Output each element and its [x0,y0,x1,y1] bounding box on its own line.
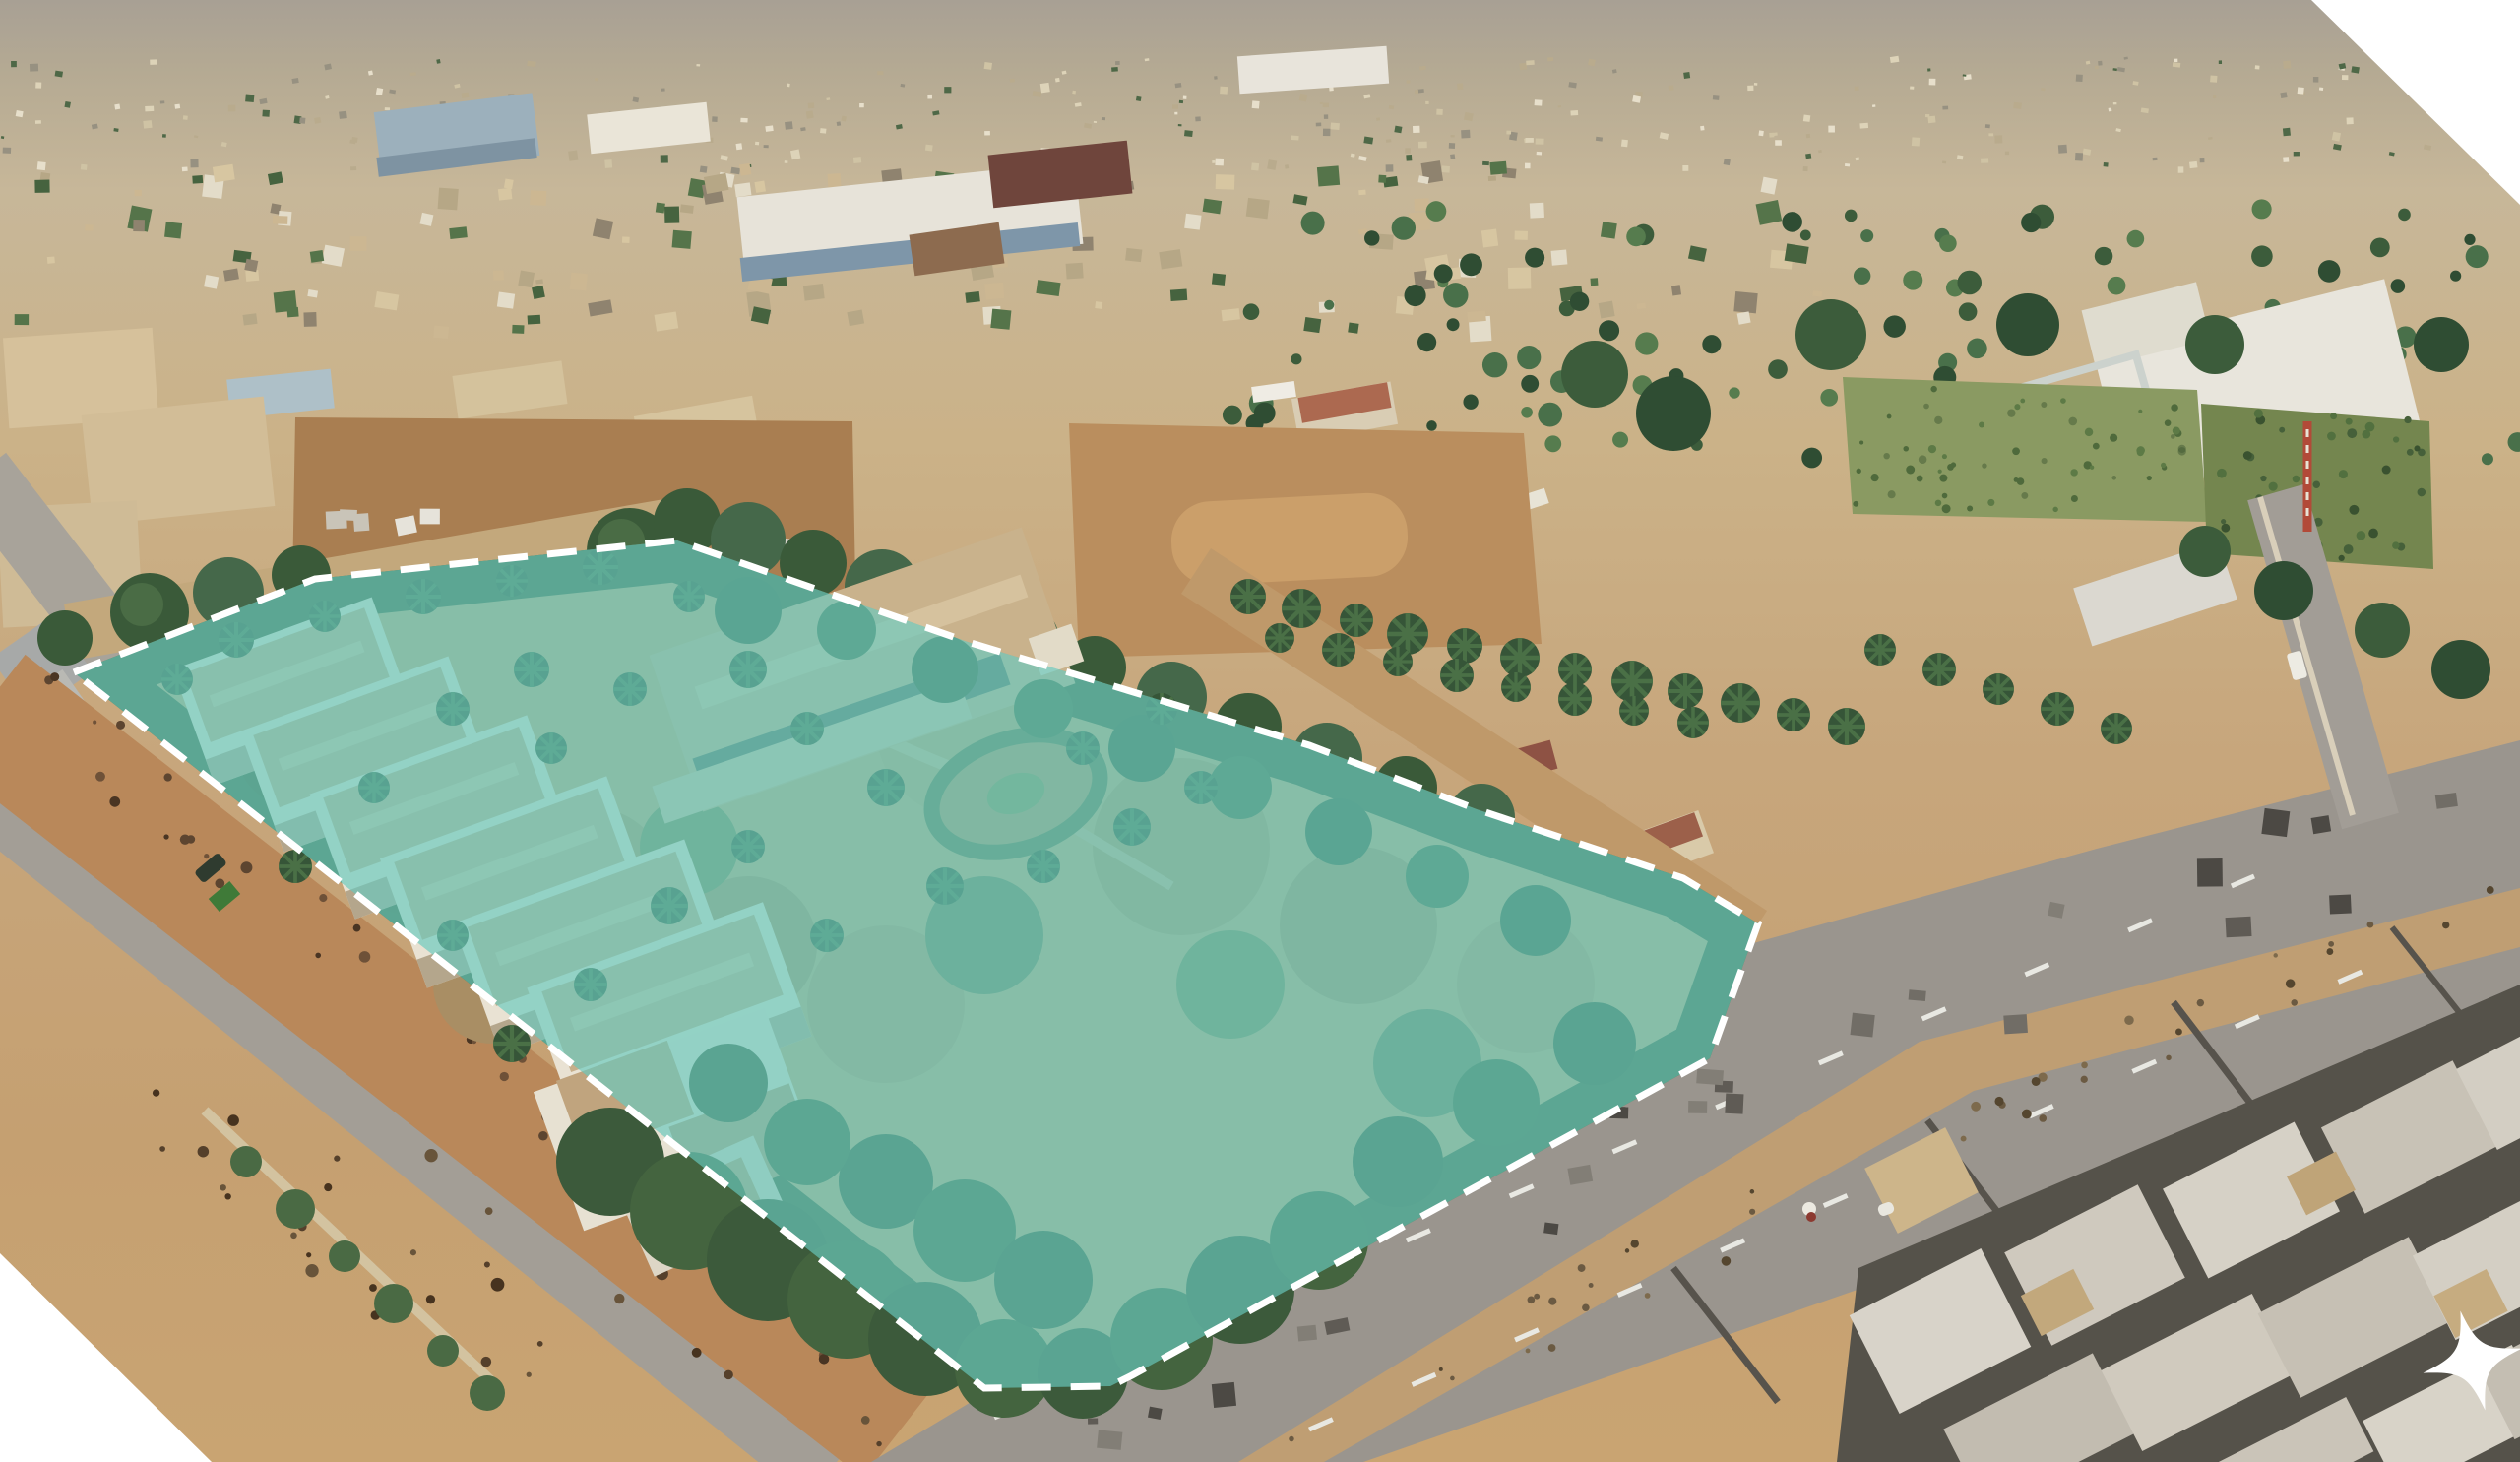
far-city-speckle-block [1406,155,1412,161]
far-city-speckle-block [2219,60,2222,64]
foreground-debris-dot [481,1357,492,1367]
field-rows-dot [1987,499,1994,506]
far-city-speckle-block [3,148,12,154]
median-debris-dot [1582,1303,1590,1311]
mid-city-blocks-block [1170,289,1187,301]
far-city-speckle-block [984,131,990,135]
outside-trees-blob [276,1189,315,1229]
palm-fronds [1983,673,2014,705]
asphalt-patches-block [1696,1068,1724,1085]
mid-city-blocks-block [1222,308,1240,321]
far-city-speckle-block [143,120,152,128]
mid-city-blocks-block [133,220,145,231]
right-orchard-trees-dot [1426,201,1447,222]
right-orchard-trees-dot [2391,279,2406,293]
right-orchard-trees-dot [1820,389,1838,407]
median-debris-dot [1548,1298,1556,1305]
median-debris-dot [2175,1029,2182,1036]
right-orchard-trees-dot [1883,315,1905,337]
far-city-speckle-block [1413,126,1420,133]
right-orchard-trees-dot [1702,335,1721,353]
far-city-speckle-block [30,64,38,72]
field-rows-dot [2007,409,2015,416]
far-city-speckle-block [162,134,166,138]
mid-city-blocks-block [1733,291,1757,313]
far-city-speckle-block [527,61,535,67]
far-city-speckle-block [1596,137,1603,142]
outside-trees-blob [2185,315,2244,374]
far-city-speckle-block [1910,86,1914,89]
mid-city-blocks-block [1489,161,1507,175]
median-debris-dot [2166,1055,2172,1061]
far-city-speckle-block [925,145,933,152]
right-orchard-trees-dot [2466,245,2488,268]
median-debris-dot [2124,1015,2134,1025]
mid-city-blocks-block [1756,200,1783,225]
far-city-speckle-block [1415,90,1418,94]
field-rows-dot [2173,427,2180,435]
right-orchard-trees-dot [1957,271,1982,295]
far-city-speckle-block [2280,92,2287,98]
foreground-debris-dot [159,1146,165,1152]
far-city-speckle-block [1184,130,1193,137]
field-rows-dot [1979,421,1984,427]
palm-fronds [1668,673,1703,709]
field-rows-dot [1883,453,1889,459]
far-city-speckle-block [2109,107,2112,111]
median-debris-dot [2328,941,2334,947]
far-city-speckle-block [765,125,773,132]
far-city-speckle-block [859,103,864,107]
field-rows-dot [2042,458,2047,464]
far-city-speckle-block [1747,86,1753,91]
far-city-speckle-block [1214,76,1218,80]
far-city-speckle-block [1394,126,1402,134]
far-city-speckle-block [1040,83,1050,94]
palm-fronds [1282,589,1321,628]
far-city-speckle-block [1010,79,1015,83]
mid-city-blocks-block [532,286,545,299]
mid-city-blocks-block [739,163,751,176]
garden-rows-dot [2293,476,2299,482]
field-rows-dot [2014,404,2020,410]
far-city-speckle-block [696,64,700,67]
far-city-speckle-block [1386,164,1394,172]
field-rows-dot [1947,464,1954,471]
far-city-speckle-block [1537,152,1543,156]
mid-city-blocks-block [1515,231,1528,240]
foreground-debris-dot [410,1249,416,1255]
far-city-speckle-block [927,95,932,99]
far-city-speckle-block [2173,59,2177,62]
right-orchard-trees-dot [2021,213,2041,232]
far-city-speckle-block [37,161,46,170]
far-city-speckle-block [2210,75,2217,82]
mid-city-blocks-block [449,226,468,239]
mid-city-blocks-block [847,310,864,327]
pedestrian-blob [1806,1212,1816,1222]
far-city-speckle-block [800,127,806,131]
field-rows-dot [1930,386,1936,392]
far-city-speckle-block [568,150,578,160]
right-orchard-trees-dot [1521,407,1533,418]
mid-city-blocks-block [518,271,535,288]
far-city-speckle-block [314,117,321,124]
far-city-speckle-block [1323,102,1329,107]
roadside-debris-dot [95,772,105,782]
garden-rows-dot [2260,476,2266,481]
mid-city-blocks-block [1203,199,1223,215]
mid-city-blocks-block [15,314,29,325]
far-city-speckle-block [2013,102,2022,109]
field-rows-dot [2052,507,2057,512]
asphalt-patches-block [1148,1407,1163,1420]
far-city-speckle-block [785,121,793,130]
mid-city-blocks-block [34,179,49,192]
far-city-speckle-block [1525,138,1533,143]
far-city-speckle-block [1547,57,1553,61]
far-city-speckle-block [1803,115,1810,122]
mid-city-blocks-block [1317,165,1340,186]
mid-city-blocks-block [656,203,665,214]
foreground-debris-dot [290,1232,297,1239]
far-city-speckle-block [808,102,815,108]
median-debris-dot [2081,1062,2088,1069]
right-orchard-trees-dot [2450,271,2461,282]
mid-city-blocks-block [244,259,258,272]
far-city-speckle-block [1806,134,1810,138]
far-city-speckle-block [1927,68,1930,71]
far-city-speckle-block [1927,116,1935,124]
right-orchard-trees-dot [2127,230,2145,248]
mid-city-blocks-block [310,250,325,263]
outside-trees-blob [1996,293,2059,356]
far-city-speckle-block [1419,66,1426,71]
mid-city-blocks-block [965,291,980,303]
mid-city-blocks-block [1467,310,1485,322]
far-city-speckle-block [604,159,612,168]
mid-city-blocks-block [1378,175,1386,183]
median-debris-dot [1722,1256,1732,1266]
right-orchard-trees-dot [2095,247,2113,266]
foreground-debris-dot [369,1284,377,1292]
right-orchard-trees-dot [1291,353,1301,364]
mid-city-blocks-block [420,213,434,226]
right-orchard-trees-dot [1392,216,1416,239]
far-city-speckle-block [1094,121,1097,123]
outside-trees-blob [230,1146,262,1177]
far-city-speckle-block [2153,158,2158,160]
right-orchard-trees-dot [1544,435,1561,452]
far-city-speckle-block [1179,100,1183,103]
roadside-debris-dot [240,861,252,873]
far-city-speckle-block [2104,162,2109,167]
garden-rows-dot [2254,409,2263,417]
field-rows-dot [1942,493,1948,499]
far-city-speckle-block [790,150,800,160]
far-city-speckle-block [1803,166,1808,171]
mid-city-blocks-block [655,311,679,331]
far-city-speckle-block [368,70,373,75]
right-orchard-trees-dot [1768,359,1788,379]
far-city-speckle-block [736,143,743,150]
far-city-speckle-block [1588,59,1596,67]
mid-city-blocks-block [504,178,514,189]
field-rows-dot [2020,399,2025,404]
outside-trees-blob [427,1335,459,1367]
far-city-speckle-block [410,72,416,76]
far-city-speckle-block [1669,86,1674,91]
right-orchard-trees-dot [1447,318,1460,331]
mid-city-blocks-block [664,206,679,222]
asphalt-patches-block [1097,1430,1122,1450]
far-city-speckle-block [2200,158,2205,162]
mid-city-blocks-block [164,222,182,238]
far-city-speckle-block [1172,104,1178,109]
asphalt-patches-block [2435,793,2458,809]
field-rows-dot [1853,501,1858,507]
mid-city-blocks-block [1761,177,1778,195]
roadside-debris-dot [163,834,168,839]
field-rows-dot [1919,455,1927,464]
far-city-speckle-block [1535,99,1543,105]
far-city-speckle-block [1174,112,1177,115]
garden-rows-dot [2362,430,2370,439]
palm-fronds [1558,682,1592,716]
far-city-speckle-block [1855,86,1859,91]
far-city-speckle-block [1407,80,1411,83]
far-city-speckle-block [1570,110,1578,115]
median-debris-dot [2022,1110,2032,1119]
right-orchard-trees-dot [1517,346,1541,369]
mid-city-blocks-block [1212,273,1226,285]
palm-fronds [2101,713,2132,744]
far-city-speckle-block [2347,117,2354,124]
truck-yard-vehicles-block [340,509,357,521]
median-debris-dot [1548,1344,1556,1352]
far-city-speckle-block [2351,66,2360,73]
far-city-speckle-block [1845,163,1850,166]
far-city-speckle-block [1621,140,1628,148]
median-debris-dot [1961,1136,1967,1142]
far-city-speckle-block [1683,72,1690,79]
field-rows-dot [2165,419,2172,426]
median-debris-dot [1289,1436,1294,1442]
mid-city-blocks-block [1159,249,1182,269]
far-city-speckle-block [1985,124,1990,128]
roadside-debris-dot [109,796,120,807]
far-city-speckle-block [1754,83,1758,86]
mid-city-blocks-block [1216,174,1235,189]
far-city-speckle-block [2113,102,2117,104]
garden-rows-dot [2407,449,2414,456]
mid-city-blocks-block [245,270,259,282]
far-city-speckle-block [2342,75,2348,80]
far-city-speckle-block [1506,131,1511,135]
far-city-speckle-block [712,116,718,122]
right-orchard-trees-dot [2398,209,2411,222]
aerial-photo [0,0,2520,1462]
median-debris-dot [1971,1102,1981,1112]
palm-fronds [1440,659,1474,692]
mid-city-blocks-block [1530,203,1544,219]
asphalt-patches-block [1725,1093,1743,1113]
far-city-speckle-block [764,145,769,148]
mid-city-blocks-block [1488,176,1496,181]
right-orchard-trees-dot [2252,199,2272,219]
far-city-speckle-block [339,111,347,119]
truck-yard-vehicles-block [420,509,440,525]
field-rows-dot [2085,428,2093,436]
right-orchard-trees-dot [1967,339,1987,359]
field-rows-dot [1857,469,1861,474]
roadside-debris-dot [319,894,327,902]
asphalt-patches-block [2311,815,2332,834]
far-city-speckle-block [174,104,180,109]
median-debris-dot [1578,1264,1586,1272]
right-orchard-trees-dot [1599,320,1619,341]
far-city-speckle-block [1769,133,1774,138]
garden-rows-dot [2392,541,2399,548]
far-city-speckle-block [113,128,118,132]
median-debris-dot [1630,1240,1638,1247]
far-city-speckle-block [1912,137,1920,146]
right-orchard-trees-dot [1434,264,1453,283]
field-rows-dot [2071,495,2078,502]
right-orchard-trees-dot [1538,403,1562,427]
mid-city-blocks-block [438,188,459,211]
mid-city-blocks-block [535,279,543,284]
far-city-speckle-block [853,157,861,163]
palm-fronds [1864,634,1896,666]
far-city-speckle-block [2319,88,2323,91]
garden-rows-dot [2346,418,2353,425]
median-debris-dot [2442,922,2449,928]
right-orchard-trees-dot [2464,234,2475,245]
far-city-speckle-block [2178,166,2184,172]
mid-city-blocks-block [47,256,55,263]
far-city-speckle-block [1872,104,1875,107]
garden-rows-dot [2404,416,2411,423]
right-orchard-trees-dot [1612,432,1628,448]
far-city-speckle-block [350,166,356,170]
garden-rows-dot [2339,470,2348,478]
far-city-speckle-block [1251,162,1259,170]
field-rows-dot [1942,504,1951,513]
garden-rows-dot [2414,445,2420,451]
far-city-speckle-block [2213,95,2216,98]
mid-city-blocks-block [734,182,751,197]
garden-rows-dot [2269,482,2278,491]
mid-city-blocks-block [204,275,219,289]
far-city-speckle-block [1450,154,1455,159]
far-city-speckle-block [2095,66,2099,70]
field-rows-dot [2138,410,2142,413]
far-city-speckle-block [2173,62,2180,67]
foreground-debris-dot [614,1294,624,1303]
field-rows-dot [1935,500,1942,507]
far-city-speckle-block [1417,89,1424,93]
palm-fronds [1447,628,1482,664]
far-city-speckle-block [1102,117,1105,120]
far-city-speckle-block [1212,160,1215,163]
field-rows-dot [2017,477,2025,485]
asphalt-patches-block [1909,989,1926,1001]
right-orchard-trees-dot [1417,333,1436,351]
asphalt-patches-block [1212,1382,1236,1408]
palm-fronds [1677,707,1709,738]
field-rows-dot [1859,441,1863,445]
median-debris-dot [1439,1367,1443,1371]
far-city-speckle-block [944,87,951,93]
far-city-speckle-block [1988,133,1993,136]
palm-fronds [1230,579,1266,614]
right-orchard-trees-dot [1903,271,1922,290]
mid-city-blocks-block [1348,323,1358,334]
right-orchard-trees-dot [1570,292,1589,311]
far-city-speckle-block [2098,61,2102,66]
right-orchard-trees-dot [1959,302,1978,321]
foreground-debris-dot [527,1372,532,1377]
far-city-speckle-block [64,101,70,108]
garden-rows-dot [2221,524,2230,533]
far-city-speckle-block [1299,94,1308,102]
far-city-speckle-block [1178,124,1182,126]
far-city-speckle-block [787,84,790,88]
far-city-speckle-block [2005,152,2009,156]
outside-trees-blob [374,1284,413,1323]
foreground-debris-dot [491,1278,505,1292]
mid-city-blocks-block [350,236,367,251]
far-city-speckle-block [2313,77,2318,83]
garden-rows-dot [2313,481,2320,488]
median-debris-dot [1526,1349,1531,1354]
mid-city-blocks-block [1599,301,1615,319]
roadside-debris-dot [180,834,190,844]
median-debris-dot [1994,1097,2003,1106]
far-city-speckle-block [2298,87,2304,94]
palm-fronds [1265,623,1294,653]
field-rows-dot [2021,492,2028,499]
roadside-debris-dot [353,924,361,932]
median-debris-dot [2286,979,2295,987]
field-rows-dot [1917,476,1923,482]
foreground-debris-dot [198,1146,210,1158]
field-rows-dot [1888,490,1896,498]
far-city-speckle-block [661,155,668,162]
garden-rows-dot [2368,529,2378,539]
foreground-debris-dot [692,1348,702,1358]
mid-city-blocks-block [528,315,541,325]
far-city-speckle-block [1525,163,1531,169]
right-orchard-trees-dot [1301,212,1325,235]
outside-trees-blob [2355,603,2410,658]
far-city-speckle-block [1775,140,1782,146]
mid-city-blocks-block [754,181,766,193]
mid-city-blocks-block [1737,311,1751,324]
far-city-speckle-block [81,164,88,170]
far-city-speckle-block [1828,126,1835,133]
far-city-speckle-block [1805,154,1811,159]
median-debris-dot [2081,1076,2088,1083]
foreground-debris-dot [324,1183,332,1191]
far-city-speckle-block [1320,102,1323,104]
roadside-debris-dot [359,951,371,963]
foreground-debris-dot [306,1252,311,1257]
right-orchard-trees-dot [1525,248,1544,268]
right-orchard-trees-dot [1223,406,1242,425]
field-rows-dot [1906,466,1915,475]
